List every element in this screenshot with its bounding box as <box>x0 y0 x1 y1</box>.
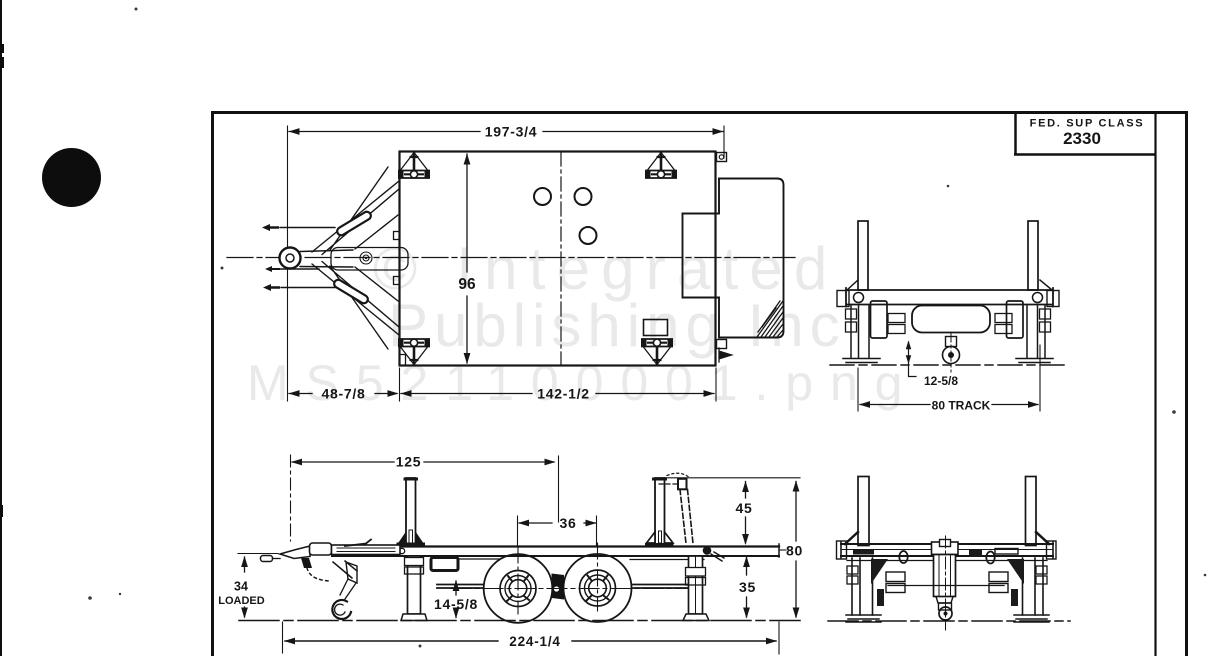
svg-text:48-7/8: 48-7/8 <box>322 385 366 401</box>
svg-text:2330: 2330 <box>1063 129 1101 148</box>
svg-text:125: 125 <box>396 454 421 470</box>
svg-text:142-1/2: 142-1/2 <box>537 385 589 401</box>
svg-text:12-5/8: 12-5/8 <box>924 374 958 388</box>
svg-text:224-1/4: 224-1/4 <box>509 634 560 649</box>
svg-text:197-3/4: 197-3/4 <box>485 123 537 139</box>
svg-text:35: 35 <box>739 579 756 595</box>
svg-text:96: 96 <box>458 276 476 293</box>
svg-text:80 TRACK: 80 TRACK <box>932 399 991 413</box>
svg-text:FED. SUP CLASS: FED. SUP CLASS <box>1030 118 1145 130</box>
svg-text:34: 34 <box>234 579 248 593</box>
svg-text:45: 45 <box>736 500 753 516</box>
svg-text:80: 80 <box>786 542 803 558</box>
svg-text:MS521100001.png: MS521100001.png <box>247 355 919 411</box>
svg-text:36: 36 <box>560 515 577 531</box>
svg-text:14-5/8: 14-5/8 <box>434 596 478 612</box>
svg-text:LOADED: LOADED <box>218 595 265 607</box>
